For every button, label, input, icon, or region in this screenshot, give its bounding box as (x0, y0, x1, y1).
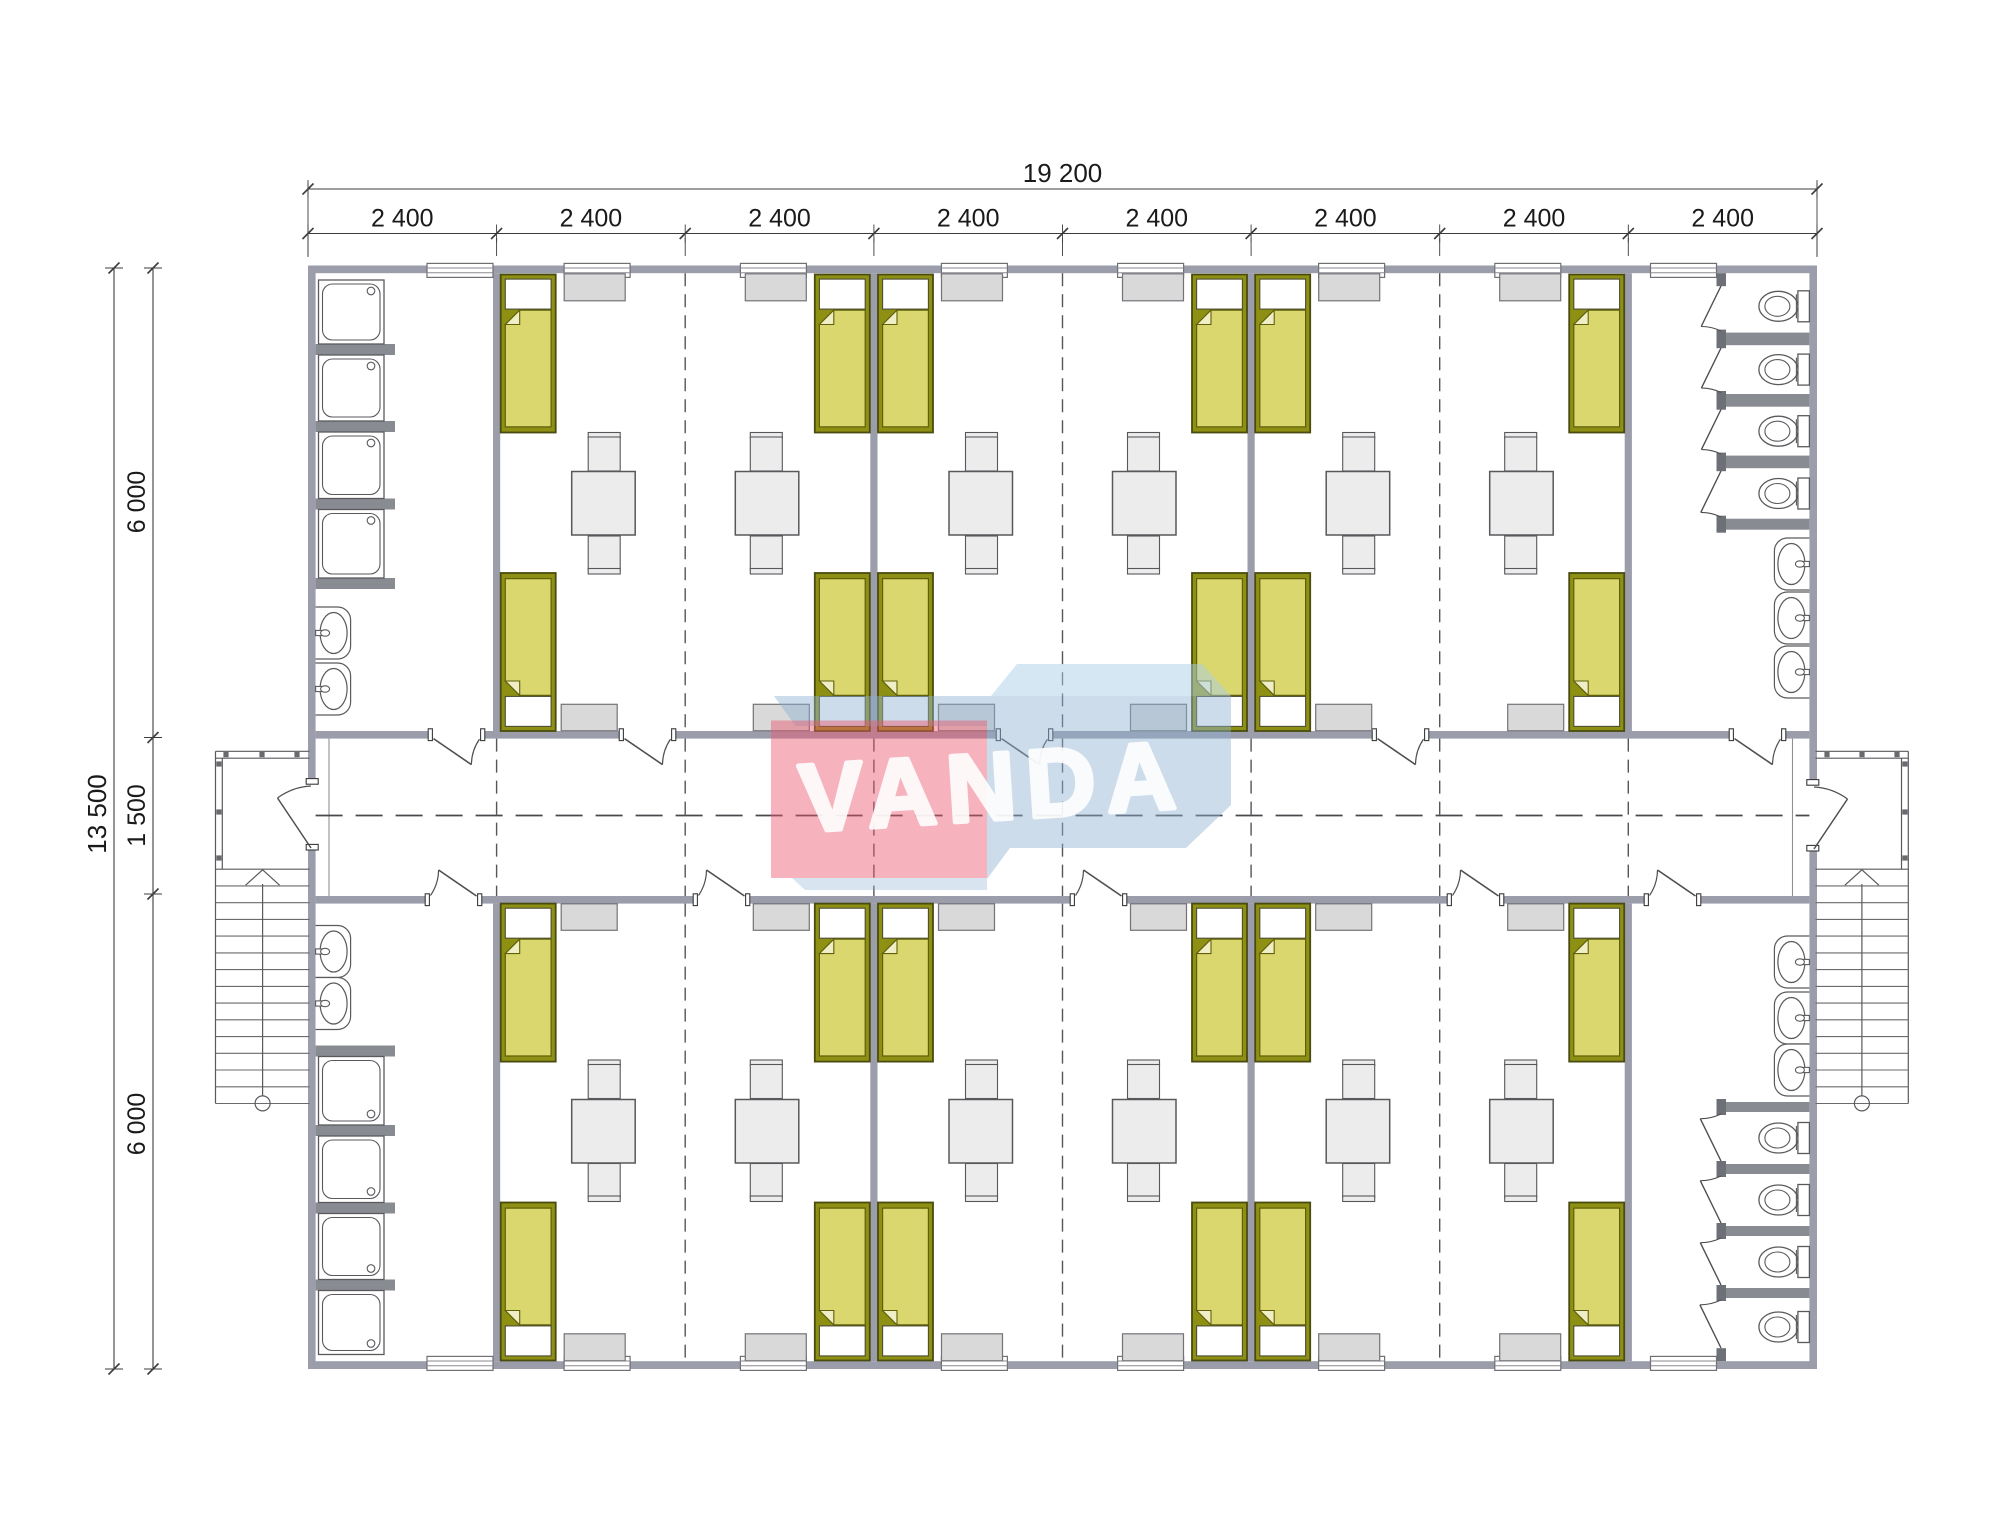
svg-text:13 500: 13 500 (82, 774, 112, 854)
svg-text:6 000: 6 000 (123, 471, 151, 534)
svg-text:2 400: 2 400 (371, 205, 434, 233)
svg-text:2 400: 2 400 (937, 205, 1000, 233)
svg-text:2 400: 2 400 (560, 205, 623, 233)
svg-text:2 400: 2 400 (1314, 205, 1377, 233)
svg-text:2 400: 2 400 (1691, 205, 1754, 233)
svg-text:1 500: 1 500 (123, 784, 151, 847)
svg-text:2 400: 2 400 (1503, 205, 1566, 233)
svg-text:2 400: 2 400 (748, 205, 811, 233)
svg-text:19 200: 19 200 (1023, 158, 1103, 188)
svg-text:6 000: 6 000 (123, 1093, 151, 1156)
svg-text:2 400: 2 400 (1126, 205, 1189, 233)
